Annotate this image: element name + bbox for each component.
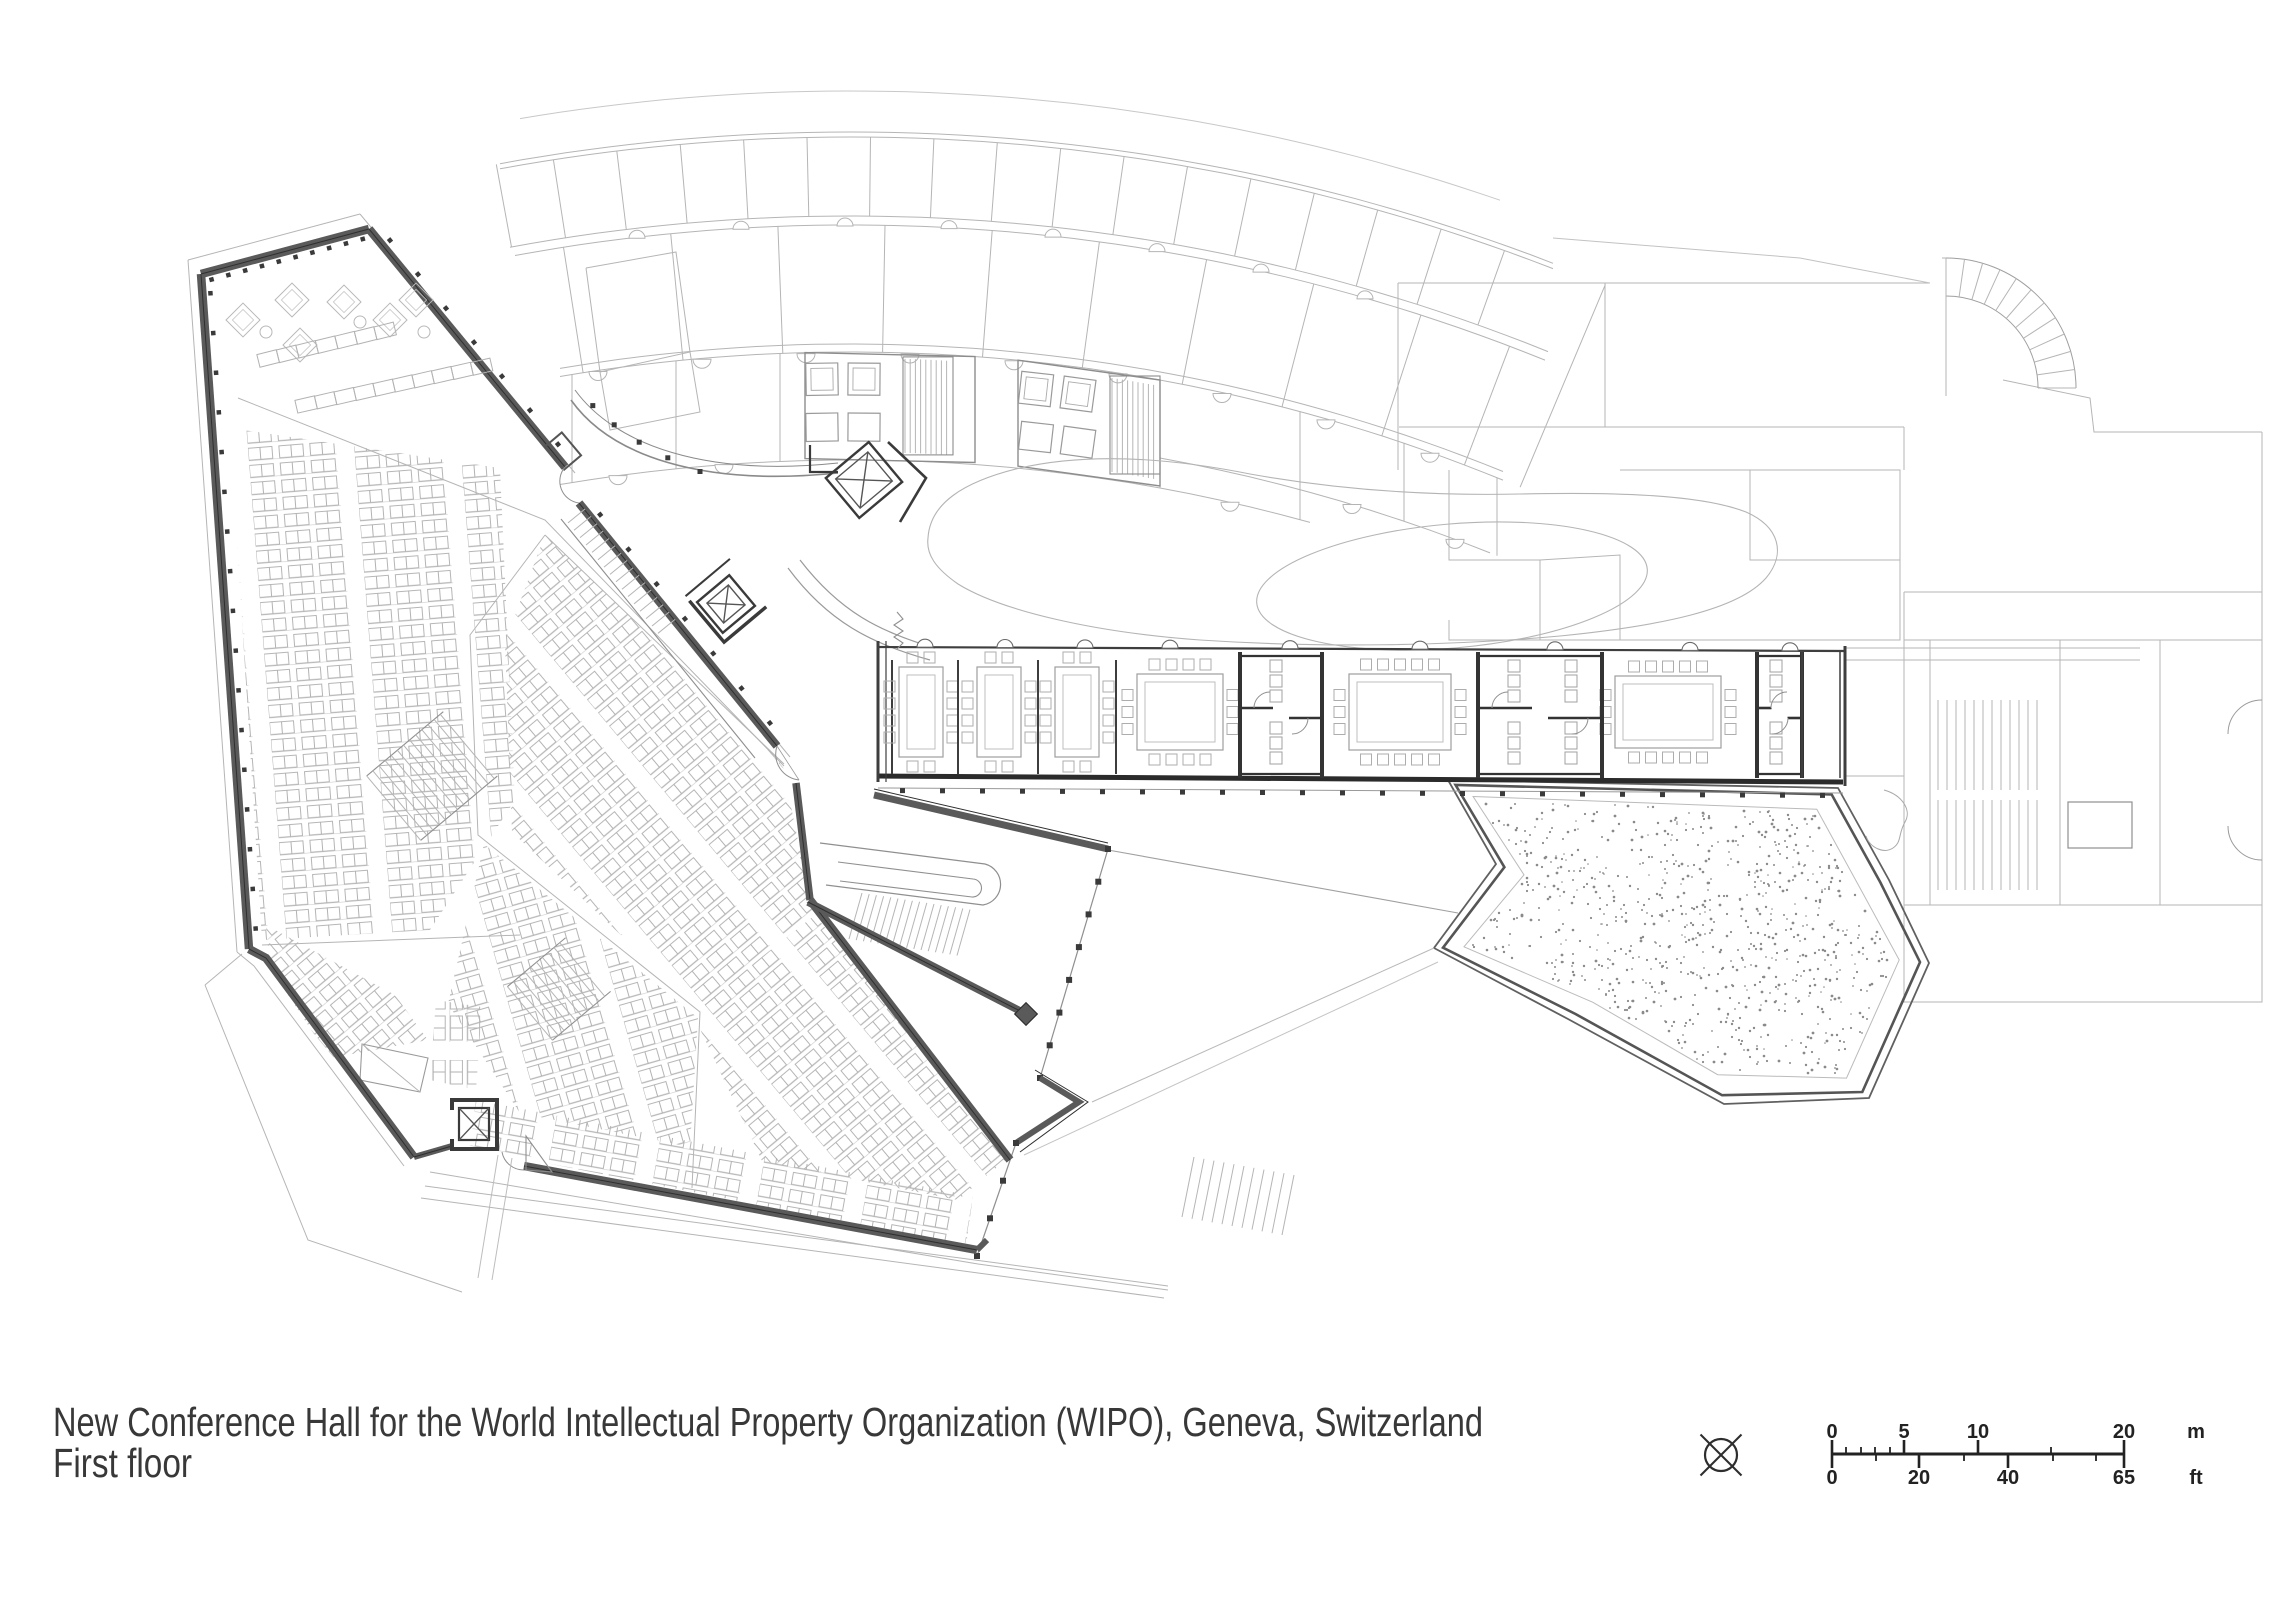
svg-text:10: 10 [1967,1421,1989,1443]
svg-text:65: 65 [2113,1467,2135,1489]
svg-text:New Conference Hall for the Wo: New Conference Hall for the World Intell… [53,1399,1483,1445]
svg-text:m: m [2187,1421,2205,1443]
svg-text:0: 0 [1826,1421,1837,1443]
svg-text:First floor: First floor [53,1440,192,1486]
svg-text:5: 5 [1898,1421,1909,1443]
svg-text:20: 20 [2113,1421,2135,1443]
svg-text:20: 20 [1908,1467,1930,1489]
svg-text:0: 0 [1826,1467,1837,1489]
svg-text:40: 40 [1997,1467,2019,1489]
svg-text:ft: ft [2189,1467,2203,1489]
